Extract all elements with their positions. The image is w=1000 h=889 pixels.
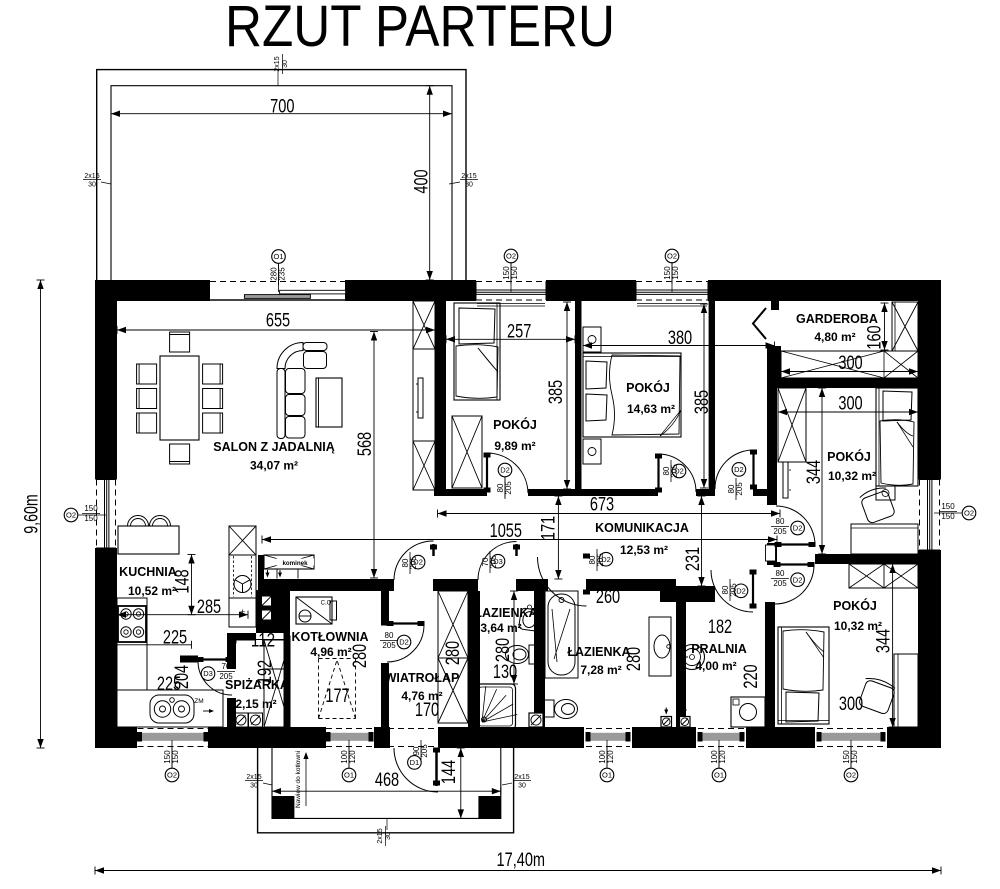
svg-text:9,89 m²: 9,89 m² [494,439,535,453]
svg-text:PRALNIA: PRALNIA [691,642,747,656]
svg-text:205: 205 [773,579,787,588]
svg-text:KUCHNIA: KUCHNIA [119,565,177,579]
svg-text:ZM: ZM [194,698,203,705]
svg-text:9,60m: 9,60m [22,494,43,534]
svg-text:380: 380 [668,327,692,349]
svg-text:10,52 m²: 10,52 m² [128,584,176,598]
svg-text:17,40m: 17,40m [497,850,546,871]
svg-text:120: 120 [348,750,357,764]
svg-text:385: 385 [545,380,567,404]
svg-text:4,96 m²: 4,96 m² [310,645,351,659]
svg-text:O1: O1 [602,771,612,780]
svg-text:ŁAZIENKA: ŁAZIENKA [567,645,630,659]
svg-text:171: 171 [538,516,560,540]
svg-text:568: 568 [354,432,376,456]
svg-text:4,80 m²: 4,80 m² [814,330,855,344]
svg-text:O1: O1 [714,771,724,780]
svg-text:O2: O2 [964,509,974,518]
svg-text:120: 120 [718,750,727,764]
svg-text:205: 205 [420,744,429,758]
svg-text:2x15: 2x15 [84,173,99,180]
svg-text:150: 150 [671,266,680,280]
svg-text:673: 673 [590,494,614,516]
svg-text:O2: O2 [846,771,856,780]
svg-text:30: 30 [518,783,526,790]
svg-text:344: 344 [803,460,825,484]
svg-text:O2: O2 [167,771,177,780]
svg-text:D1: D1 [410,758,420,767]
svg-text:300: 300 [839,693,863,715]
svg-text:POKÓJ: POKÓJ [493,417,537,432]
svg-text:30: 30 [385,832,392,840]
svg-text:150: 150 [941,502,955,511]
svg-text:WIATROŁAP: WIATROŁAP [385,671,460,685]
svg-text:260: 260 [596,586,620,608]
svg-text:D2: D2 [500,466,510,475]
svg-text:4,00 m²: 4,00 m² [695,659,736,673]
svg-text:205: 205 [596,553,605,567]
svg-text:205: 205 [670,464,679,478]
svg-text:POKÓJ: POKÓJ [626,380,670,395]
svg-text:30: 30 [88,182,96,189]
svg-text:10,32 m²: 10,32 m² [828,469,876,483]
svg-text:205: 205 [382,641,396,650]
svg-text:30: 30 [282,60,289,68]
svg-text:280: 280 [442,641,464,665]
svg-text:12,53 m²: 12,53 m² [620,543,668,557]
svg-text:205: 205 [504,481,513,495]
svg-text:34,07 m²: 34,07 m² [250,459,298,473]
svg-text:70: 70 [222,662,231,671]
svg-text:150: 150 [510,266,519,280]
svg-text:O1: O1 [273,252,283,261]
svg-text:2x15: 2x15 [461,173,476,180]
svg-text:2x15: 2x15 [246,774,261,781]
svg-text:205: 205 [735,482,744,496]
svg-text:205: 205 [729,583,738,597]
svg-text:RZUT PARTERU: RZUT PARTERU [225,0,615,59]
svg-text:205: 205 [773,527,787,536]
svg-text:400: 400 [411,169,433,193]
svg-text:144: 144 [438,760,460,784]
svg-text:280: 280 [349,644,371,668]
svg-text:1055: 1055 [490,520,523,542]
svg-text:2x15: 2x15 [377,828,384,843]
svg-text:150: 150 [171,750,180,764]
svg-text:KOMUNIKACJA: KOMUNIKACJA [595,521,689,535]
svg-text:285: 285 [197,596,221,618]
svg-text:468: 468 [375,769,399,791]
svg-text:80: 80 [776,569,785,578]
svg-text:225: 225 [163,627,187,649]
svg-text:177: 177 [325,685,349,707]
svg-text:205: 205 [409,556,418,570]
svg-text:D3: D3 [203,669,213,678]
svg-text:C.O.: C.O. [321,601,334,607]
svg-text:30: 30 [465,182,473,189]
svg-text:120: 120 [606,750,615,764]
svg-text:Nawiew do kotłowni: Nawiew do kotłowni [295,751,302,808]
svg-text:O2: O2 [66,511,76,520]
svg-text:7,28 m²: 7,28 m² [580,663,621,677]
svg-text:30: 30 [250,783,258,790]
svg-text:257: 257 [507,321,531,343]
svg-text:231: 231 [682,547,704,571]
svg-text:300: 300 [838,352,862,374]
svg-text:204: 204 [171,665,193,689]
svg-text:300: 300 [838,393,862,415]
svg-text:D2: D2 [734,465,744,474]
svg-text:kominek: kominek [282,560,308,567]
svg-text:80: 80 [776,517,785,526]
svg-text:D2: D2 [793,524,803,533]
svg-text:205: 205 [489,555,498,569]
svg-text:D2: D2 [793,575,803,584]
svg-text:KOTŁOWNIA: KOTŁOWNIA [291,630,368,644]
svg-text:700: 700 [270,96,294,118]
svg-text:150: 150 [84,504,98,513]
svg-text:130: 130 [493,661,517,683]
svg-text:150: 150 [850,750,859,764]
svg-text:D2: D2 [399,638,409,647]
svg-text:112: 112 [251,630,275,652]
svg-text:655: 655 [266,310,290,332]
svg-text:O2: O2 [506,252,516,261]
svg-text:2,15 m²: 2,15 m² [235,697,276,711]
svg-text:14,63 m²: 14,63 m² [627,402,675,416]
svg-text:SALON Z JADALNIĄ: SALON Z JADALNIĄ [213,440,335,454]
svg-text:205: 205 [219,672,233,681]
svg-text:2x15: 2x15 [514,774,529,781]
svg-text:280: 280 [492,638,514,662]
svg-text:POKÓJ: POKÓJ [827,449,871,464]
svg-text:182: 182 [708,616,732,638]
svg-text:385: 385 [691,390,713,414]
svg-text:SPIŻARKA: SPIŻARKA [225,677,289,692]
svg-text:POKÓJ: POKÓJ [833,598,877,613]
svg-text:O2: O2 [667,252,677,261]
svg-text:3,64 m²: 3,64 m² [480,621,521,635]
svg-text:ŁAZIENKA: ŁAZIENKA [474,606,537,620]
svg-text:220: 220 [740,664,762,688]
svg-text:235: 235 [278,267,287,281]
svg-text:10,32 m²: 10,32 m² [834,619,882,633]
svg-text:4,76 m²: 4,76 m² [401,689,442,703]
svg-text:GARDEROBA: GARDEROBA [796,312,878,326]
svg-text:80: 80 [385,631,394,640]
svg-text:160: 160 [864,325,886,349]
svg-text:O1: O1 [344,771,354,780]
